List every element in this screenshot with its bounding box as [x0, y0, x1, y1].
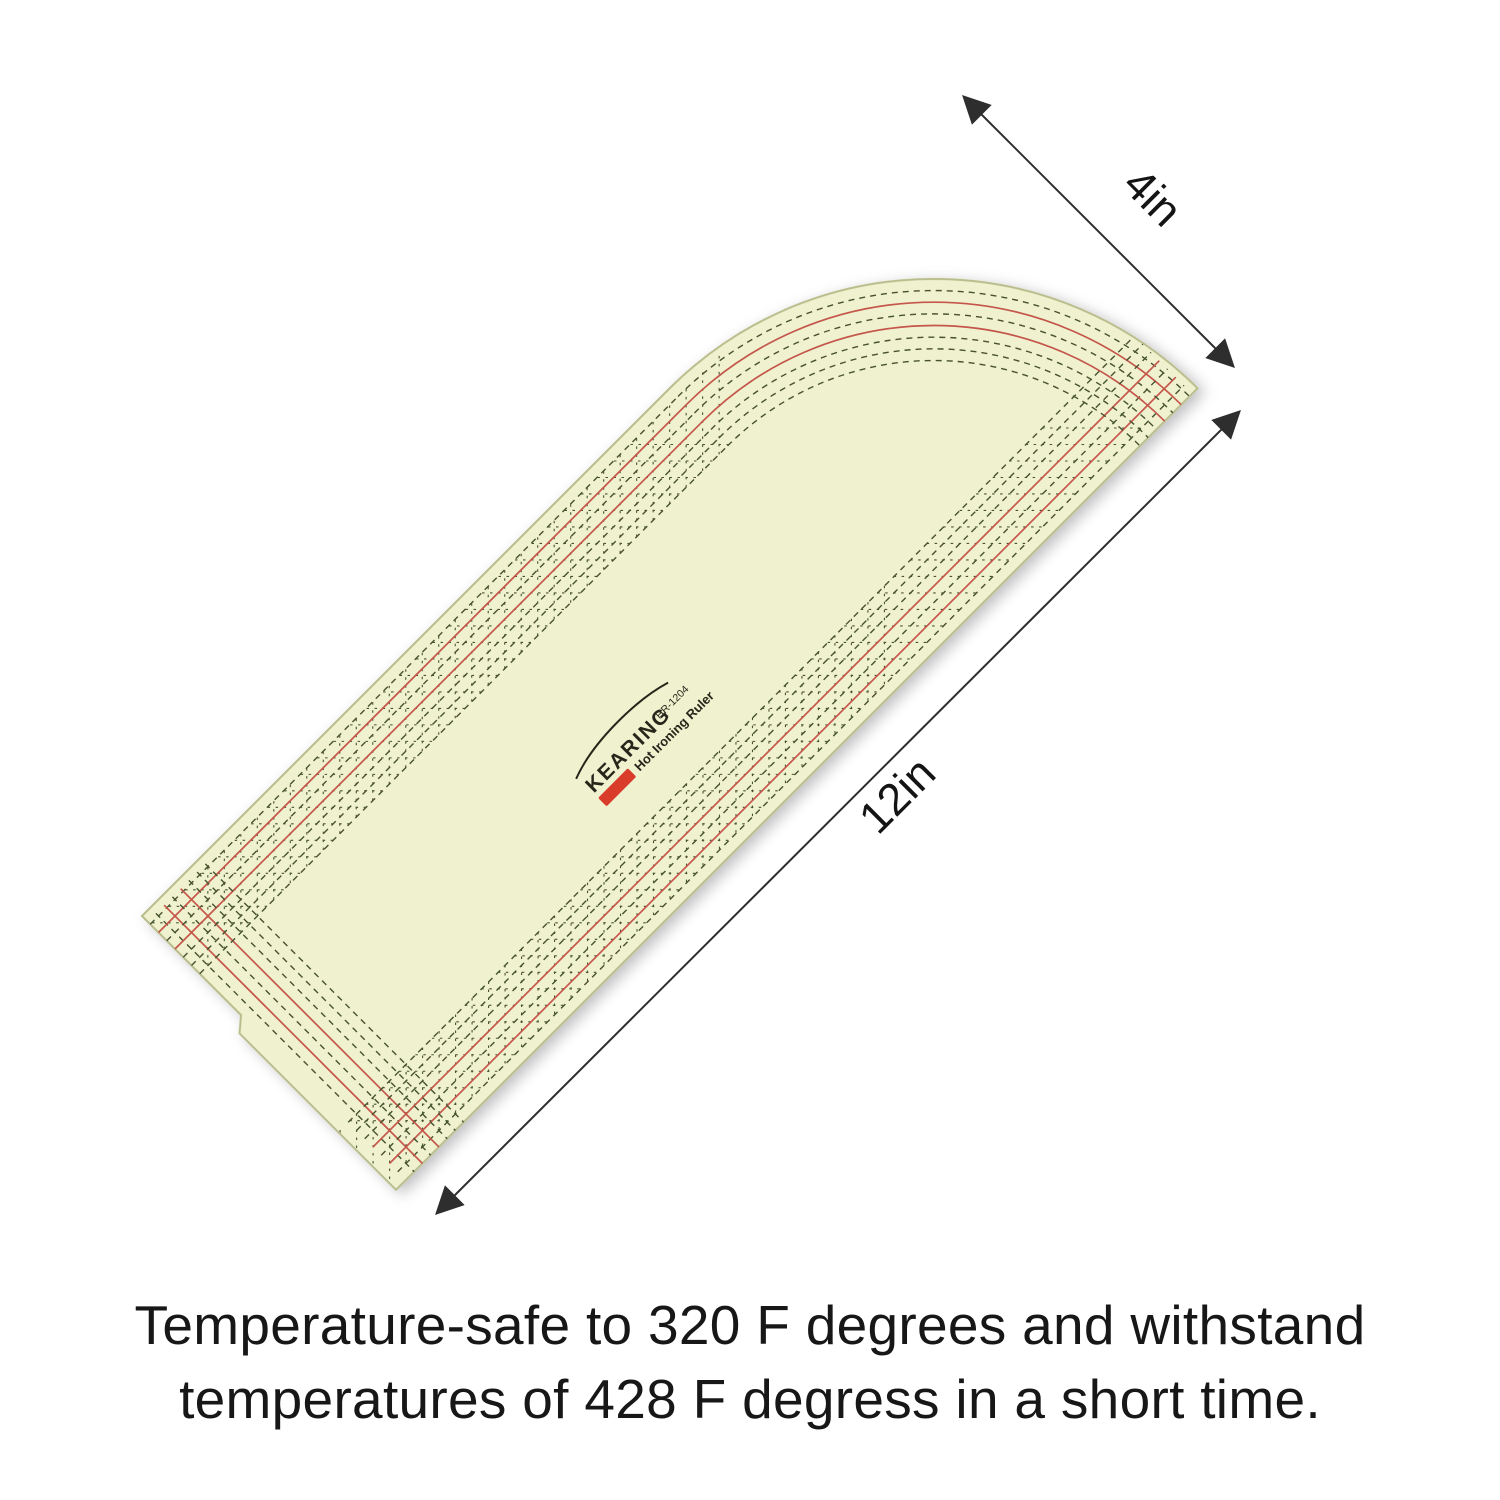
caption: Temperature-safe to 320 F degrees and wi…: [0, 1288, 1500, 1436]
ruler-illustration: 4in 12in KEARING HR-1204 Hot Ironing Rul…: [0, 0, 1500, 1500]
ironing-ruler: KEARING HR-1204 Hot Ironing Ruler: [85, 124, 1198, 1237]
caption-line-1: Temperature-safe to 320 F degrees and wi…: [0, 1288, 1500, 1362]
product-image: 4in 12in KEARING HR-1204 Hot Ironing Rul…: [0, 0, 1500, 1500]
width-dimension-label: 4in: [1114, 158, 1193, 237]
ruler-body: [132, 124, 1198, 1190]
length-dimension-label: 12in: [849, 747, 945, 843]
caption-line-2: temperatures of 428 F degress in a short…: [0, 1362, 1500, 1436]
